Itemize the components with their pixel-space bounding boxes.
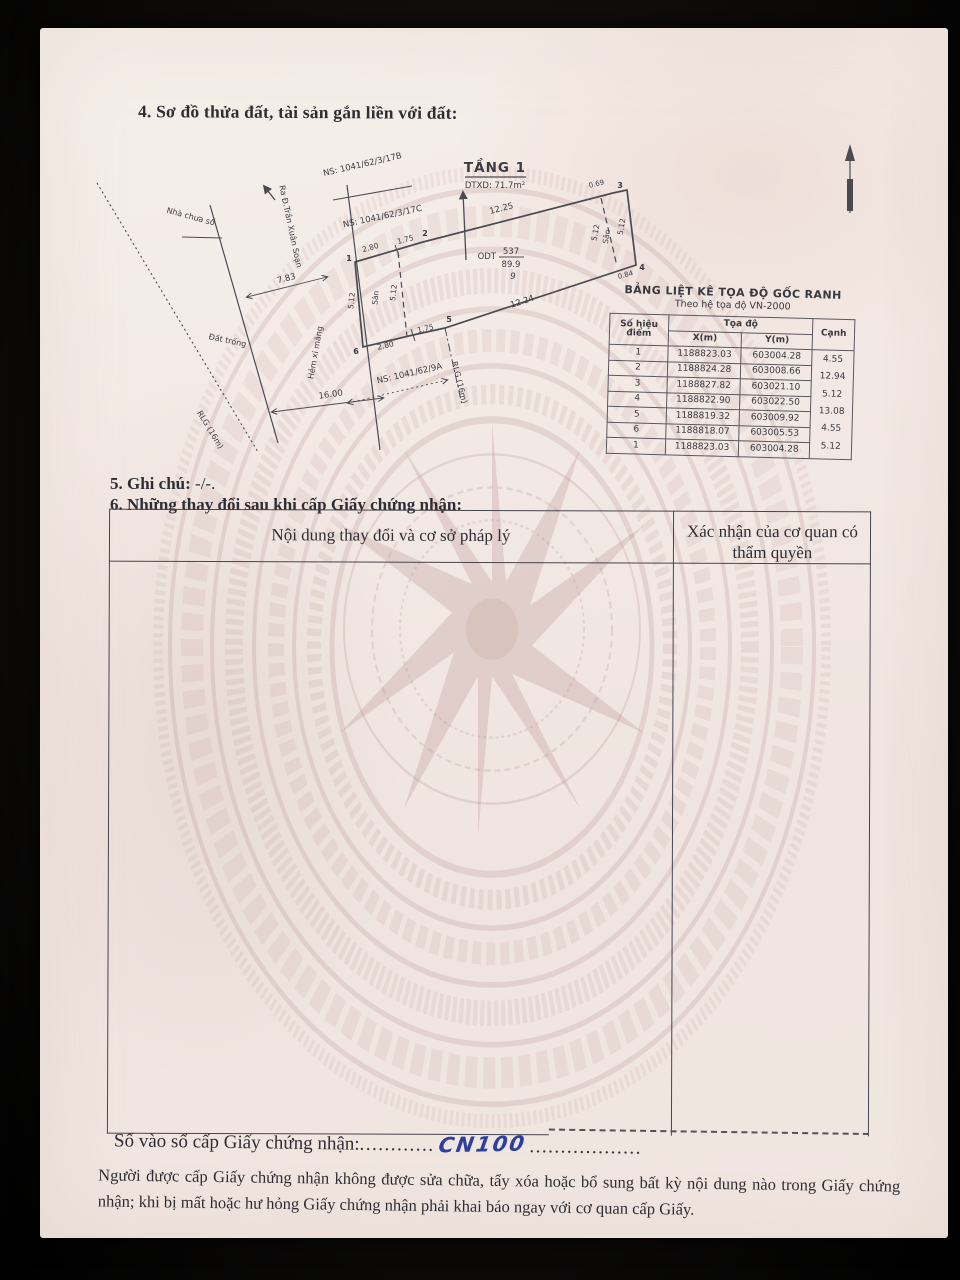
dim-7-83: 7.83: [276, 272, 297, 286]
cell-point: 5: [607, 406, 666, 423]
edge-value: 4.55: [811, 424, 852, 434]
point-2: 2: [422, 229, 428, 238]
lot-number: 537: [503, 247, 519, 257]
cell-y: 603021.10: [740, 379, 811, 396]
neighbor-ns17c: NS: 1041/62/3/17C: [342, 204, 423, 231]
coordinate-table-grid: Số hiệu điểm Tọa độ Cạnh X(m) Y(m) 1 118…: [606, 313, 856, 460]
section5-label: 5. Ghi chú:: [110, 474, 191, 493]
cell-y: 603005.53: [739, 425, 810, 442]
cell-y: 603008.66: [741, 363, 812, 380]
label-rlg-right: RLG (16m): [450, 360, 469, 404]
dim-1-75-bottom: 1.75: [416, 322, 435, 335]
point-4: 4: [639, 263, 645, 272]
dim-5-12-right-dash: 5.12: [590, 223, 602, 241]
dim-16-00: 16.00: [318, 388, 343, 401]
book-number-label: Số vào sổ cấp Giấy chứng nhận:: [114, 1130, 360, 1154]
cell-point: 1: [606, 437, 665, 454]
edge-column: 4.55 12.94 5.12 13.08 4.55 5.12: [810, 350, 854, 460]
label-ra-duong: Ra Đ.Trần Xuân Soạn: [276, 184, 304, 269]
label-san-left: Sân: [370, 290, 380, 305]
label-dat-trong: Đất trống: [208, 331, 247, 349]
edge-value: 4.55: [813, 355, 854, 365]
changes-table-header-row: Nội dung thay đổi và cơ sở pháp lý: [109, 509, 871, 565]
header-edge: Cạnh: [812, 319, 854, 351]
dotted-leader: ............: [359, 1134, 434, 1156]
neighbor-ns9a: NS: 1041/62/9A: [376, 362, 443, 387]
dim-5-12-left-dash: 5.12: [388, 284, 399, 302]
section5-value: -/-.: [191, 474, 216, 493]
dim-1-75-top: 1.75: [396, 233, 415, 246]
edge-value: 13.08: [811, 407, 852, 417]
book-number-value: CN100: [432, 1131, 531, 1157]
certificate-page: 4. Sơ đồ thửa đất, tài sản gắn liền với …: [40, 28, 948, 1238]
dim-12-25: 12.25: [488, 201, 514, 217]
cell-point: 2: [608, 360, 667, 377]
label-rlg-left: RLG (16m): [195, 409, 225, 450]
cell-y: 603009.92: [739, 410, 810, 427]
label-san-right: Sân: [601, 229, 612, 245]
coordinate-table: BẢNG LIỆT KÊ TỌA ĐỘ GỐC RANH Theo hệ tọa…: [606, 283, 856, 460]
dim-0-69: 0.69: [588, 178, 605, 190]
point-6: 6: [353, 347, 359, 356]
cell-point: 1: [609, 344, 668, 361]
header-point: Số hiệu điểm: [609, 313, 669, 346]
point-5: 5: [446, 315, 452, 324]
lot-label: ODT 537 89.9 9: [478, 247, 524, 282]
cell-point: 4: [608, 391, 667, 408]
lot-sheet: 9: [510, 272, 515, 282]
point-1: 1: [346, 254, 352, 263]
edge-value: 12.94: [812, 372, 853, 382]
cell-point: 6: [607, 422, 666, 439]
changes-col1: Nội dung thay đổi và cơ sở pháp lý: [109, 509, 673, 563]
dim-2-80-bottom: 2.80: [376, 339, 395, 352]
cell-y: 603004.28: [741, 348, 812, 365]
neighbor-ns17b: NS: 1041/62/3/17B: [322, 151, 403, 179]
road-lines: [97, 183, 462, 452]
floor-title: TẦNG 1: [464, 157, 526, 176]
section5-line: 5. Ghi chú: -/-.: [110, 474, 215, 494]
photo-background: 4. Sơ đồ thửa đất, tài sản gắn liền với …: [0, 0, 960, 1280]
street-direction-arrow: [264, 186, 275, 200]
dotted-leader: ..................: [529, 1136, 642, 1159]
section4-title: 4. Sơ đồ thửa đất, tài sản gắn liền với …: [138, 101, 458, 124]
lot-area: 89.9: [502, 260, 521, 270]
dim-5-12-left-edge: 5.12: [346, 292, 357, 310]
dim-5-12-right-edge: 5.12: [616, 217, 628, 235]
header-y: Y(m): [741, 332, 812, 349]
floor-area: DTXD: 71.7m²: [465, 181, 525, 191]
lot-code: ODT: [478, 252, 497, 262]
changes-table: Xác nhận của cơ quan có thẩm quyền Nội d…: [107, 509, 871, 1137]
north-arrow-icon: [845, 144, 855, 213]
cell-point: 3: [608, 375, 667, 392]
dim-12-24: 12.24: [509, 294, 535, 311]
point-3: 3: [617, 181, 623, 190]
label-hem-xi-mang: Hẻm xi măng: [305, 325, 324, 380]
edge-value: 5.12: [810, 442, 851, 452]
changes-col1-header: Nội dung thay đổi và cơ sở pháp lý: [271, 525, 510, 547]
edge-value: 5.12: [812, 390, 853, 400]
cell-y: 603022.50: [740, 394, 811, 411]
floor-direction-arrow: [463, 192, 466, 260]
changes-table-right-column: Xác nhận của cơ quan có thẩm quyền: [671, 511, 871, 1137]
footer-note: Người được cấp Giấy chứng nhận không đượ…: [98, 1162, 901, 1225]
label-nha-chua-so: Nhà chưa số: [166, 205, 217, 228]
cell-y: 603004.28: [739, 441, 810, 458]
dim-2-80-top: 2.80: [361, 241, 380, 254]
cell-x: 1188823.03: [665, 439, 739, 456]
